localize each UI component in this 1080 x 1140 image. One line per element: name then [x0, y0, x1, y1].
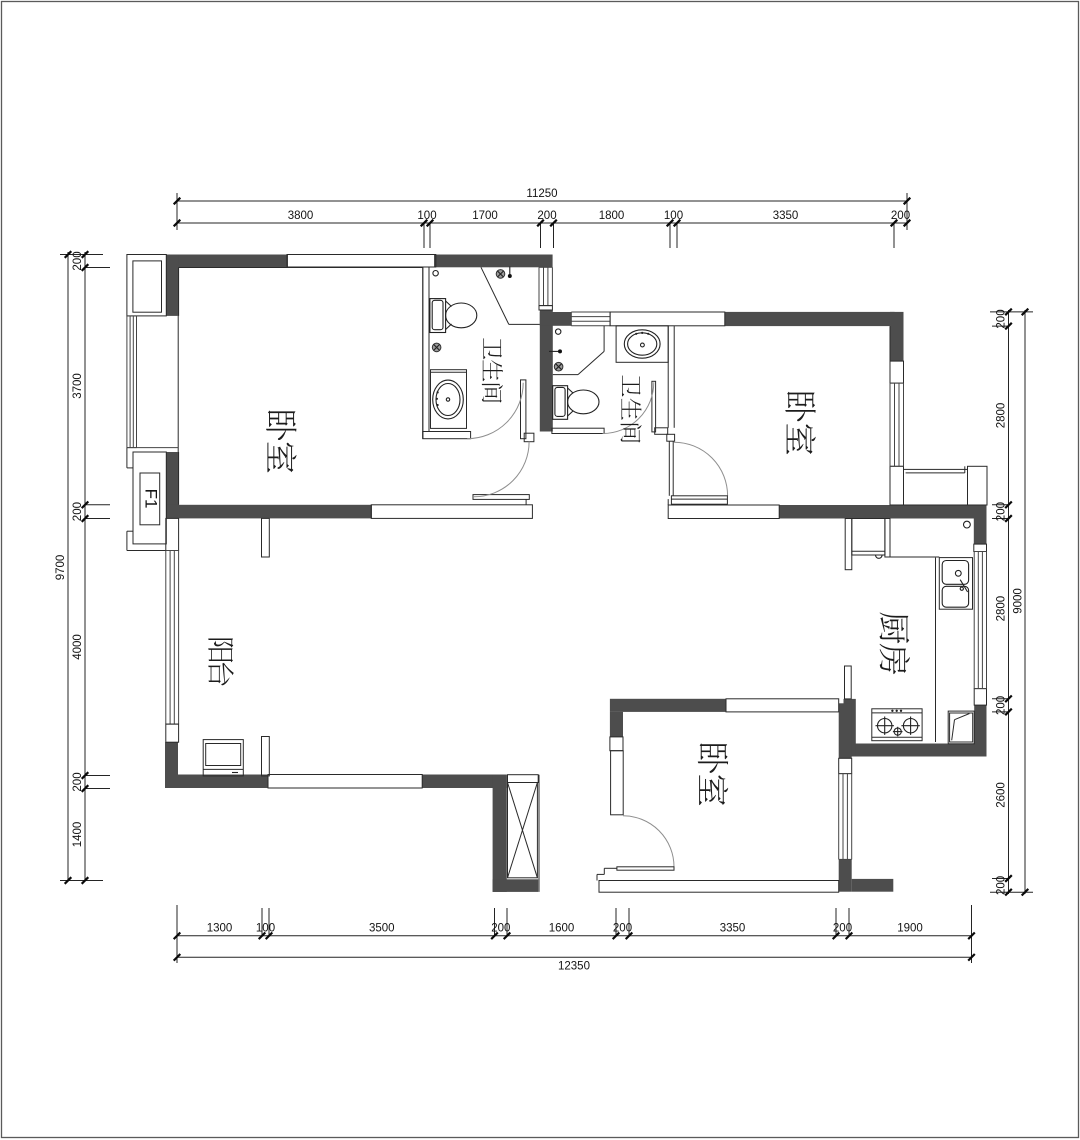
svg-text:3350: 3350 — [773, 210, 799, 222]
svg-text:200: 200 — [996, 876, 1008, 895]
svg-text:4000: 4000 — [72, 634, 84, 660]
svg-text:F1: F1 — [142, 489, 161, 509]
svg-text:1600: 1600 — [549, 923, 575, 935]
svg-text:200: 200 — [72, 502, 84, 521]
svg-text:200: 200 — [891, 210, 910, 222]
svg-text:1800: 1800 — [599, 210, 625, 222]
svg-text:200: 200 — [537, 210, 556, 222]
svg-text:1400: 1400 — [72, 822, 84, 848]
svg-text:3500: 3500 — [369, 923, 395, 935]
svg-text:1900: 1900 — [897, 923, 923, 935]
svg-text:100: 100 — [664, 210, 683, 222]
svg-text:200: 200 — [996, 696, 1008, 715]
svg-text:100: 100 — [417, 210, 436, 222]
svg-text:100: 100 — [256, 923, 275, 935]
svg-text:9000: 9000 — [1013, 588, 1025, 614]
svg-text:200: 200 — [491, 923, 510, 935]
svg-text:12350: 12350 — [558, 961, 590, 973]
svg-text:1300: 1300 — [207, 923, 233, 935]
svg-text:200: 200 — [996, 309, 1008, 328]
svg-text:200: 200 — [613, 923, 632, 935]
svg-text:3700: 3700 — [72, 373, 84, 399]
svg-text:2800: 2800 — [996, 596, 1008, 622]
svg-text:2800: 2800 — [996, 403, 1008, 429]
svg-text:3350: 3350 — [720, 923, 746, 935]
svg-text:9700: 9700 — [55, 555, 67, 581]
svg-text:200: 200 — [833, 923, 852, 935]
svg-text:1700: 1700 — [472, 210, 498, 222]
svg-text:2600: 2600 — [996, 782, 1008, 808]
svg-text:200: 200 — [72, 251, 84, 270]
svg-text:3800: 3800 — [288, 210, 314, 222]
svg-text:200: 200 — [996, 502, 1008, 521]
svg-text:200: 200 — [72, 772, 84, 791]
svg-text:11250: 11250 — [526, 188, 557, 200]
